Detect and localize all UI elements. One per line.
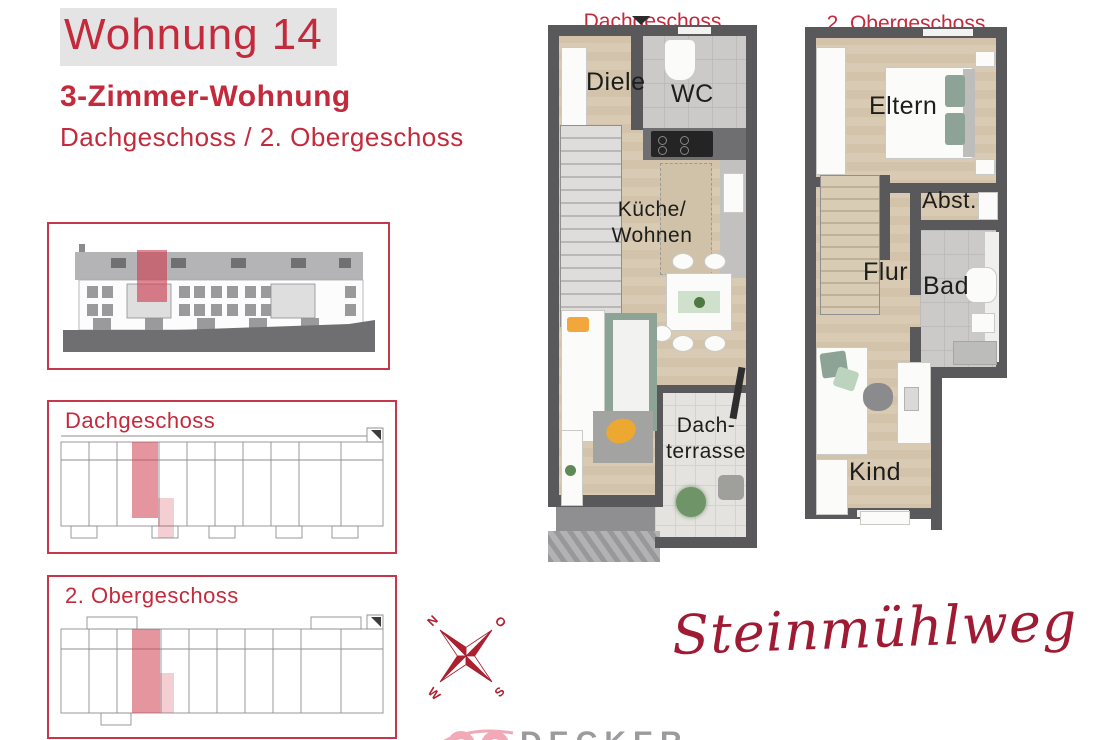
dg-wall-right — [746, 25, 757, 548]
room-label-kind: Kind — [849, 459, 901, 485]
dg-sink — [723, 173, 744, 213]
room-label-flur: Flur — [863, 259, 908, 285]
svg-text:W: W — [425, 685, 443, 703]
og-bottom-door — [860, 511, 910, 525]
og-laptop — [904, 387, 919, 411]
keyplan-obergeschoss-box: 2. Obergeschoss — [47, 575, 397, 739]
og-desk-chair — [863, 383, 893, 411]
dg-table-plant — [694, 297, 705, 308]
dg-chair3 — [672, 335, 694, 352]
og-wall-flur-bad2 — [910, 327, 921, 367]
page-title: Wohnung 14 — [60, 8, 337, 66]
compass-rose: N O S W — [418, 608, 514, 704]
dg-wall-left — [548, 25, 559, 507]
room-label-eltern: Eltern — [869, 93, 937, 119]
og-pillow1 — [945, 75, 965, 107]
keyplan-og-label: 2. Obergeschoss — [65, 583, 239, 609]
dg-terrace-chair — [718, 475, 744, 500]
header-block: Wohnung 14 3-Zimmer-Wohnung Dachgeschoss… — [60, 8, 464, 153]
brochure-page: Wohnung 14 3-Zimmer-Wohnung Dachgeschoss… — [0, 0, 1110, 740]
og-wardrobe-eltern — [816, 47, 846, 175]
keyplan-dg-label: Dachgeschoss — [65, 408, 215, 434]
room-label-abst: Abst. — [922, 187, 977, 213]
og-wall-left — [805, 27, 816, 519]
og-nightstand1 — [975, 51, 995, 67]
room-label-dachterrasse: Dach- terrasse — [666, 413, 746, 465]
floorplan-dachgeschoss: Dachgeschoss — [548, 25, 757, 562]
dg-toilet — [664, 39, 696, 81]
og-wall-top — [805, 27, 1007, 38]
svg-text:N: N — [425, 613, 441, 629]
dg-chair4 — [704, 335, 726, 352]
floors-line: Dachgeschoss / 2. Obergeschoss — [60, 122, 464, 153]
room-label-bad: Bad — [923, 273, 969, 299]
room-label-kueche-wohnen: Küche/ Wohnen — [612, 197, 693, 249]
dg-window-top — [678, 27, 711, 34]
dg-roof-hatch — [548, 531, 660, 562]
dg-chair1 — [672, 253, 694, 270]
og-wall-kind-right — [931, 367, 942, 530]
og-wall-stairs — [880, 175, 890, 260]
floorplan-obergeschoss: 2. Obergeschoss — [805, 27, 1007, 530]
og-window-top — [923, 29, 973, 36]
room-label-diele: Diele — [586, 69, 645, 95]
dg-wall-bottom-terrace — [655, 537, 757, 548]
keyplan-dachgeschoss-box: Dachgeschoss — [47, 400, 397, 554]
dg-burner4 — [680, 146, 689, 155]
company-logo: DECKER — [425, 723, 725, 740]
og-bathtub — [965, 267, 997, 303]
logo-text: DECKER — [520, 726, 689, 740]
dg-terrace-plant — [676, 487, 706, 517]
og-wc-sink — [971, 313, 995, 333]
dg-chair2 — [704, 253, 726, 270]
dg-burner3 — [658, 146, 667, 155]
dg-sofa-pillow — [567, 317, 589, 332]
apartment-type: 3-Zimmer-Wohnung — [60, 80, 464, 114]
og-abst-shelf — [978, 192, 998, 220]
compass-icon: N O S W — [418, 608, 514, 704]
og-stairs — [820, 175, 880, 315]
dg-burner1 — [658, 136, 667, 145]
og-shower — [953, 341, 997, 365]
building-elevation-drawing — [49, 224, 388, 368]
og-wall-flur-bad1 — [910, 185, 921, 295]
elevation-box — [47, 222, 390, 370]
og-nightstand2 — [975, 159, 995, 175]
dg-wall-top — [548, 25, 757, 36]
room-label-wc: WC — [671, 81, 714, 107]
svg-text:O: O — [492, 614, 509, 631]
dg-balcony-strip — [556, 507, 655, 531]
dg-wall-terrace-top2 — [700, 385, 757, 393]
dg-wardrobe — [561, 47, 587, 127]
dg-burner2 — [680, 136, 689, 145]
street-name: Steinmühlweg — [671, 592, 1018, 667]
svg-text:S: S — [492, 684, 508, 700]
og-outside-cut — [942, 378, 1007, 530]
dg-shelf-plant — [565, 465, 576, 476]
og-wardrobe-kind — [816, 459, 848, 515]
dg-daybed-mattress — [613, 320, 649, 424]
og-wall-abst-bottom — [915, 220, 1007, 230]
og-pillow2 — [945, 113, 965, 145]
entrance-arrow-icon — [632, 16, 650, 25]
